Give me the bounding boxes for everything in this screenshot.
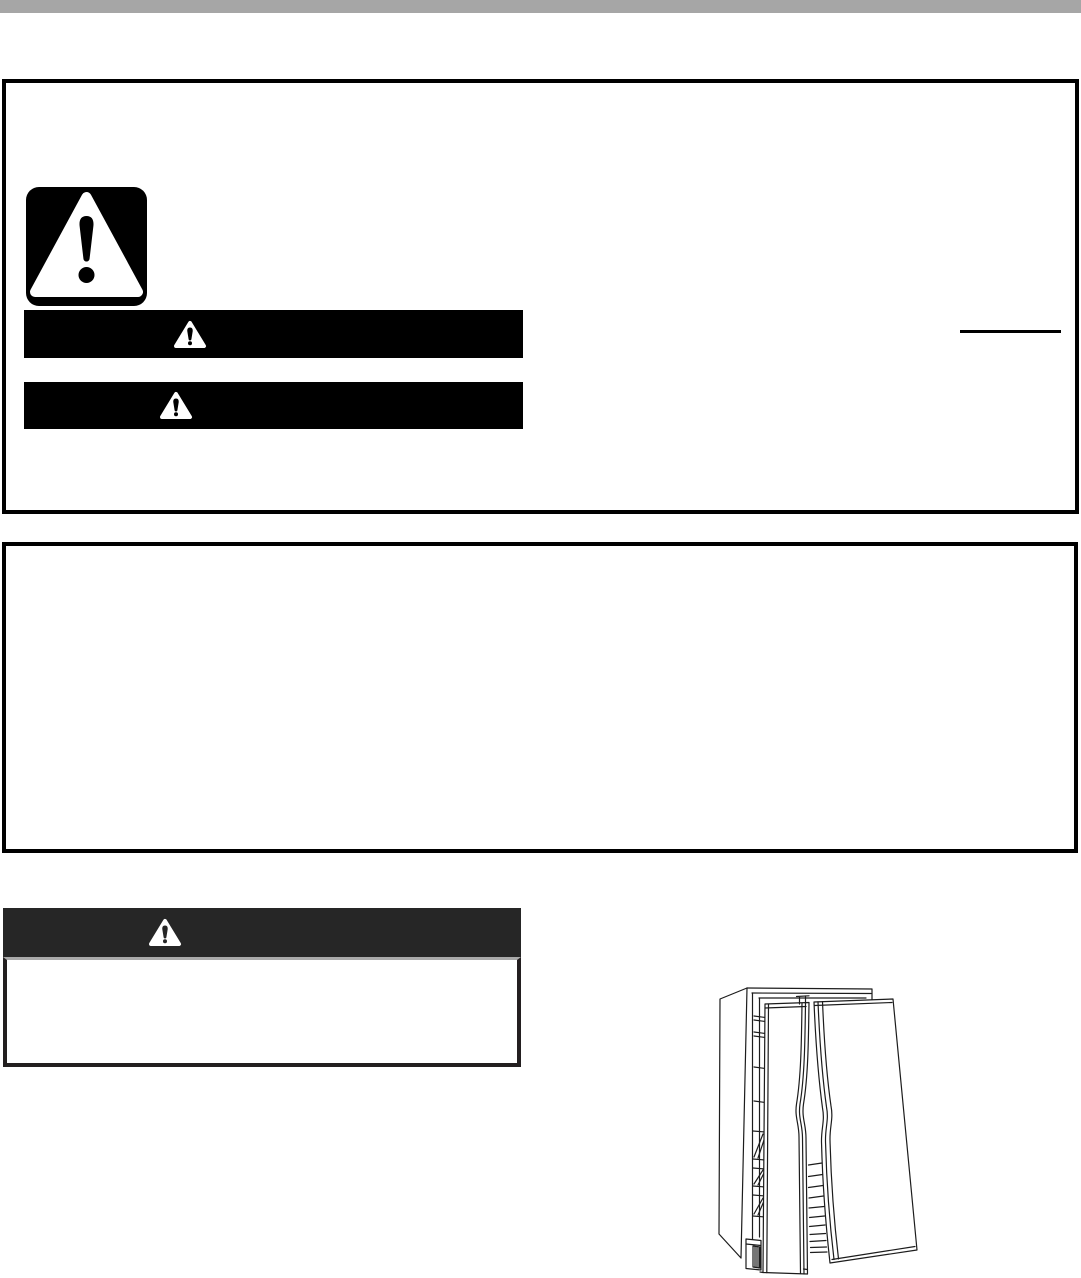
safety-alert-icon-graphic (26, 187, 147, 306)
warning-banner-charcoal (3, 908, 521, 957)
important-safety-box (2, 79, 1079, 514)
warning-text-box (3, 957, 521, 1067)
top-gray-bar (0, 0, 1081, 13)
refrigerator-line-drawing (703, 982, 918, 1278)
warning-triangle-icon (159, 391, 193, 420)
warning-triangle-icon (148, 918, 182, 947)
secondary-safety-box (2, 542, 1078, 853)
warning-banner-1 (24, 310, 523, 358)
refrigerator-figure (703, 982, 918, 1278)
note-underline (960, 330, 1061, 333)
safety-alert-icon (26, 187, 147, 306)
warning-triangle-icon (173, 320, 207, 349)
warning-banner-2 (24, 382, 523, 429)
document-page (0, 0, 1081, 1278)
